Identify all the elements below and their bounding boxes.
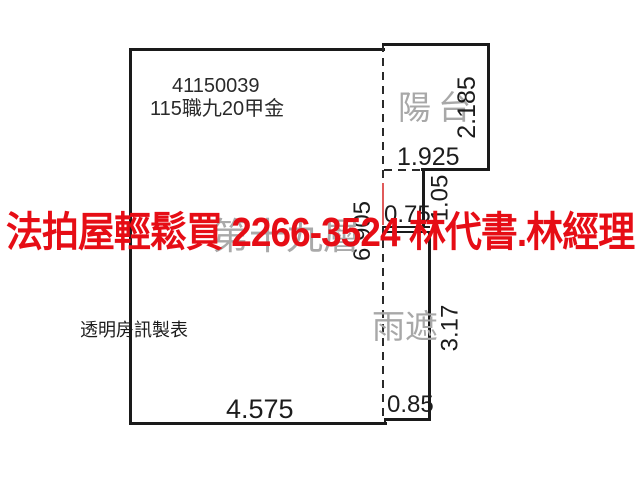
- wall-shelter-step: [384, 418, 386, 425]
- case-code: 115職九20甲金: [150, 99, 284, 119]
- case-number: 41150039: [172, 76, 260, 96]
- rain-shelter-label: 雨遮: [372, 310, 438, 343]
- floorplan-canvas: 41150039 115職九20甲金 陽台 雨遮 第十九層 透明房訊製表 1.9…: [0, 0, 640, 480]
- wall-balcony-right: [487, 43, 490, 171]
- dim-unit-width: 4.575: [226, 396, 294, 423]
- wall-balcony-top: [382, 43, 490, 46]
- dim-balcony-width: 1.925: [397, 145, 460, 170]
- wall-shelter-bottom: [384, 418, 431, 421]
- wall-main-top: [129, 48, 385, 51]
- dim-rain-shelter-height: 3.17: [438, 305, 462, 352]
- agent-watermark-text: 法拍屋輕鬆買 2266-3524 林代書.林經理: [6, 212, 634, 253]
- dim-rain-shelter-width: 0.85: [387, 393, 434, 417]
- dim-balcony-depth: 2.185: [455, 76, 480, 139]
- credit-label: 透明房訊製表: [80, 321, 188, 339]
